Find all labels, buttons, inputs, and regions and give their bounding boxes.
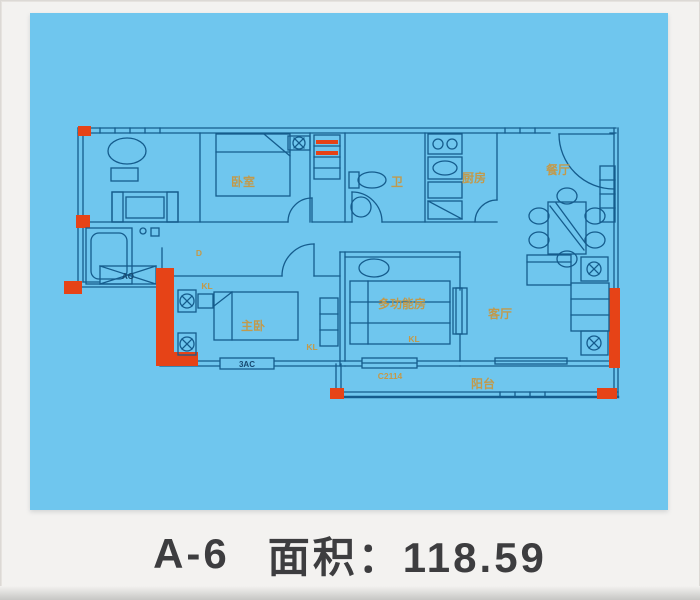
caption: A-6 面积：118.59 bbox=[0, 524, 700, 584]
multi-room-label: 多功能房 bbox=[378, 296, 426, 311]
sofa bbox=[571, 283, 609, 331]
balcony-label: 阳台 bbox=[471, 376, 495, 391]
red-wall-right bbox=[609, 288, 620, 368]
wardrobe bbox=[320, 298, 338, 346]
living-room-furniture bbox=[453, 255, 609, 355]
table-oval bbox=[108, 138, 146, 164]
kitchen-door-arc bbox=[475, 200, 497, 222]
beam-code-kl-1: KL bbox=[201, 281, 212, 291]
window-ticks bbox=[100, 128, 535, 133]
living-label: 客厅 bbox=[487, 306, 512, 321]
door-code-d: D bbox=[196, 248, 202, 258]
bottom-edge-shade bbox=[0, 586, 700, 600]
dining-furniture bbox=[529, 166, 615, 267]
area-text: 面积：118.59 bbox=[268, 524, 547, 585]
red-shelf-mark-1 bbox=[316, 140, 338, 144]
master-label: 主卧 bbox=[241, 318, 265, 333]
toilet-icon bbox=[358, 172, 386, 188]
red-wall-master-foot bbox=[156, 352, 198, 366]
middle-room-sliding-panel bbox=[456, 288, 462, 334]
red-corner-left bbox=[76, 215, 90, 228]
entry-room-furniture bbox=[108, 138, 178, 222]
bathroom-fixtures bbox=[349, 172, 386, 217]
red-corner-step bbox=[64, 281, 82, 294]
unit-number: A-6 bbox=[153, 530, 230, 578]
red-corner-balcony-right bbox=[597, 388, 617, 399]
window-code-ao: AO bbox=[122, 272, 134, 281]
chair bbox=[529, 208, 549, 224]
bath-label: 卫 bbox=[391, 175, 403, 189]
kitchen-fixtures bbox=[428, 134, 462, 219]
bedroom-label: 卧室 bbox=[231, 174, 255, 189]
window-code-c2114: C2114 bbox=[378, 371, 403, 381]
nightstand bbox=[198, 294, 213, 308]
dining-label: 餐厅 bbox=[546, 162, 570, 177]
kitchen-label: 厨房 bbox=[462, 170, 486, 185]
chair bbox=[529, 232, 549, 248]
beam-code-kl-3: KL bbox=[408, 334, 419, 344]
red-corner-balcony-left bbox=[330, 388, 344, 399]
master-door-arc bbox=[282, 244, 314, 276]
basin-oval bbox=[359, 259, 389, 277]
bath-door-arc bbox=[352, 192, 382, 222]
basin-icon bbox=[351, 197, 371, 217]
chair bbox=[585, 232, 605, 248]
tatami-platform bbox=[350, 281, 450, 344]
window-code-3ac: 3AC bbox=[239, 360, 255, 369]
red-shelf-mark-2 bbox=[316, 151, 338, 155]
red-corner-top-left bbox=[78, 126, 91, 136]
screenshot-root: 卧室 卫 厨房 餐厅 主卧 多功能房 客厅 阳台 D KL KL KL AO 3… bbox=[0, 0, 700, 600]
beam-code-kl-2: KL bbox=[306, 342, 317, 352]
bedroom-door-arc bbox=[288, 198, 312, 222]
tv-cabinet bbox=[453, 288, 467, 334]
entry-door-arc bbox=[559, 134, 614, 189]
red-wall-master-left bbox=[156, 268, 174, 356]
floorplan-drawing: 卧室 卫 厨房 餐厅 主卧 多功能房 客厅 阳台 D KL KL KL AO 3… bbox=[0, 0, 700, 600]
armchair bbox=[527, 255, 571, 285]
